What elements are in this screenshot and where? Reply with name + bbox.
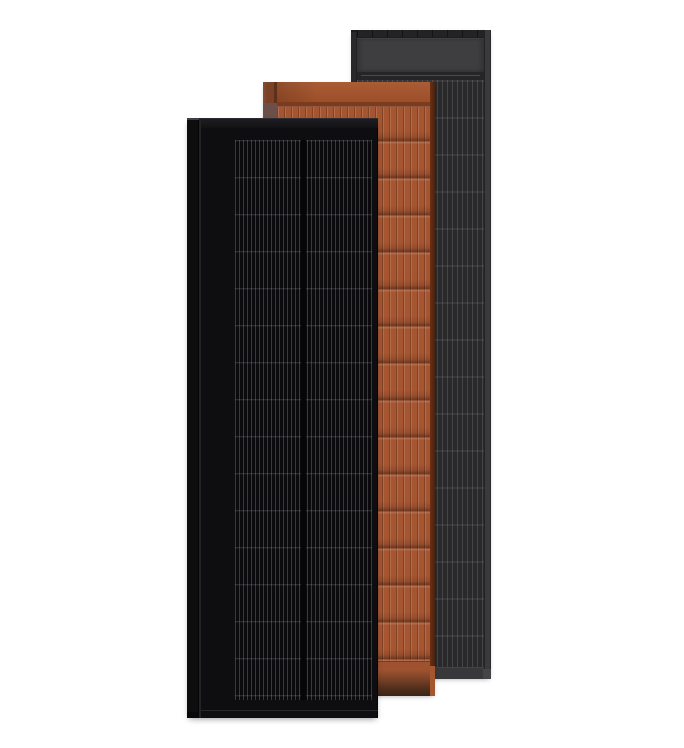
black-panel-bottom-line (201, 710, 378, 711)
terracotta-panel-side-notch (263, 103, 277, 118)
black-panel-cell-grid (235, 140, 372, 700)
graphite-panel-top-strip (357, 30, 484, 38)
black-panel-frame (201, 118, 378, 718)
product-render-canvas (0, 0, 684, 748)
graphite-panel-groove (357, 72, 484, 80)
black-solar-panel (187, 118, 378, 718)
graphite-panel-header-area (357, 38, 484, 72)
black-panel-top-lip (201, 118, 378, 128)
black-panel-left-rail (187, 118, 199, 718)
graphite-panel-corner-notch (483, 669, 491, 679)
terracotta-panel-right-edge (430, 82, 435, 666)
graphite-panel-right-frame (484, 30, 491, 679)
terracotta-panel-header-band (277, 82, 430, 102)
